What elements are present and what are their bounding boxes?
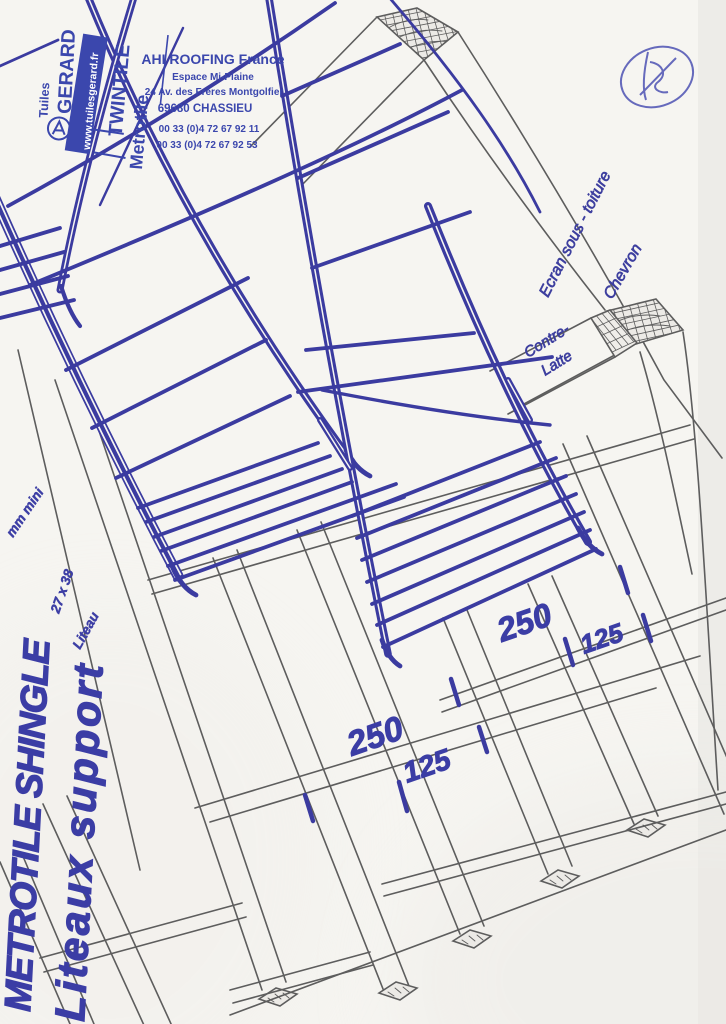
svg-text:00 33 (0)4 72 67 92 11: 00 33 (0)4 72 67 92 11 — [159, 124, 260, 135]
svg-text:AHI ROOFING France: AHI ROOFING France — [141, 51, 284, 67]
svg-text:Espace Mi-Plaine: Espace Mi-Plaine — [172, 72, 254, 83]
svg-text:69680 CHASSIEU: 69680 CHASSIEU — [158, 103, 253, 115]
svg-text:00 33 (0)4 72 67 92 53: 00 33 (0)4 72 67 92 53 — [156, 140, 258, 151]
svg-text:24 Av. des Frères Montgolfier: 24 Av. des Frères Montgolfier — [145, 87, 284, 98]
svg-text:Tuiles: Tuiles — [37, 82, 53, 118]
